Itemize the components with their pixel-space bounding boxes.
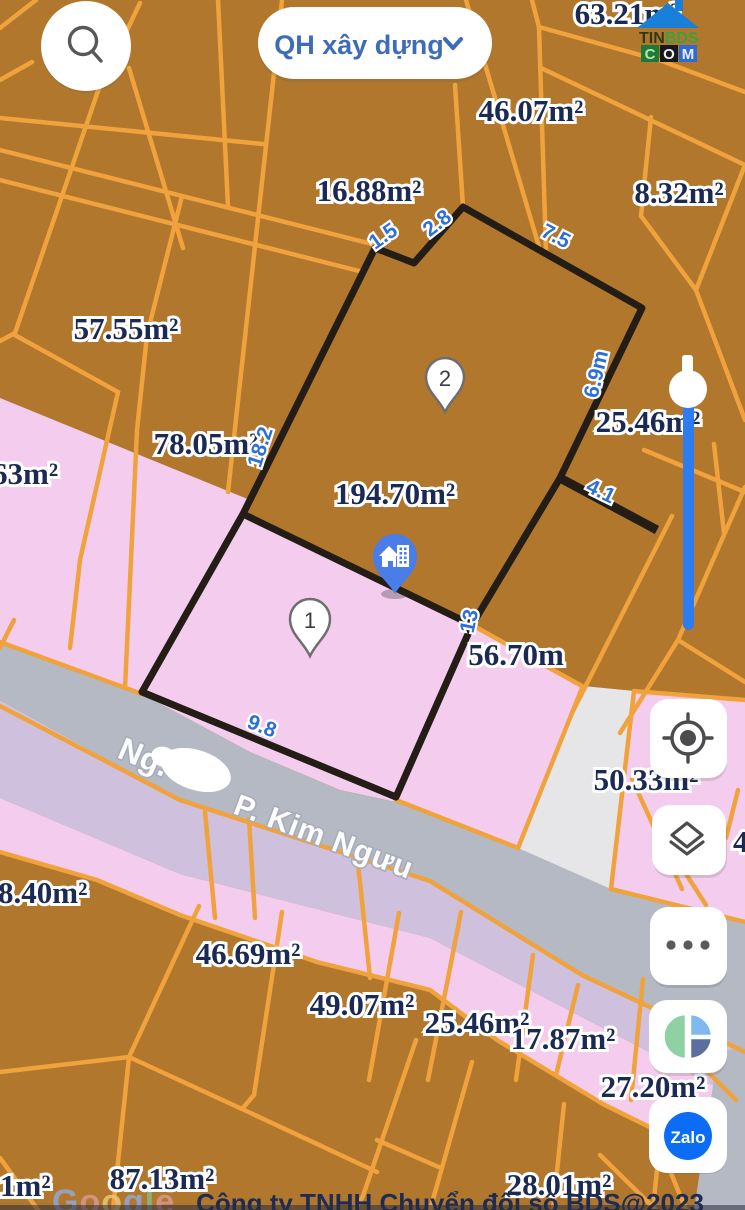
svg-text:8.40m²: 8.40m² [0,875,87,910]
svg-text:1: 1 [304,608,316,633]
svg-text:194.70m²: 194.70m² [335,476,455,511]
svg-text:49.07m²: 49.07m² [310,987,415,1022]
svg-text:M: M [682,46,695,63]
svg-text:46.07m²: 46.07m² [479,93,584,128]
svg-text:63m²: 63m² [0,456,58,491]
svg-text:C: C [645,46,656,63]
svg-text:16.88m²: 16.88m² [317,173,422,208]
svg-text:78.05m²: 78.05m² [154,426,259,461]
svg-text:56.70m: 56.70m [468,637,564,672]
svg-text:2: 2 [439,366,451,391]
svg-text:13: 13 [456,607,483,635]
svg-text:Zalo: Zalo [671,1128,706,1147]
svg-text:17.87m²: 17.87m² [511,1021,616,1056]
svg-text:O: O [663,46,675,63]
svg-text:QH xây dựng: QH xây dựng [274,30,444,60]
svg-text:57.55m²: 57.55m² [74,311,179,346]
svg-text:46.69m²: 46.69m² [196,936,301,971]
svg-text:4: 4 [733,824,745,859]
svg-text:1m²: 1m² [0,1168,51,1203]
svg-text:8.32m²: 8.32m² [634,175,723,210]
svg-text:TINBDS: TINBDS [639,30,699,47]
